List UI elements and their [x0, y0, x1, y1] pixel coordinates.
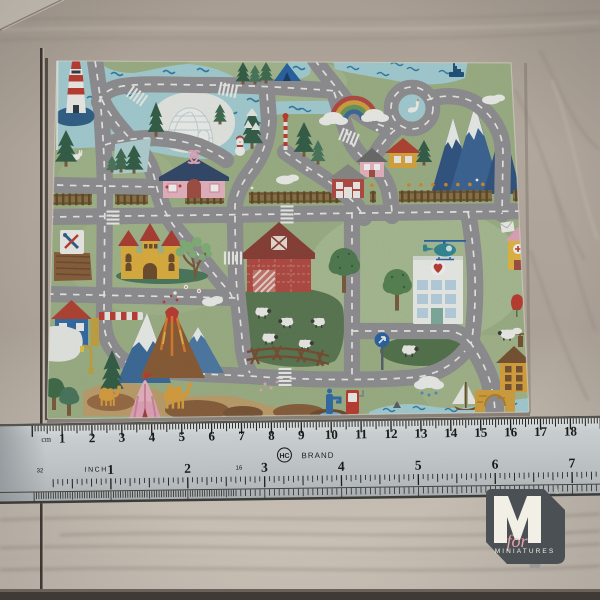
svg-text:12: 12: [384, 426, 397, 441]
svg-text:3: 3: [261, 460, 268, 475]
svg-text:10: 10: [325, 427, 338, 442]
svg-text:11: 11: [355, 426, 368, 441]
svg-text:4: 4: [149, 429, 156, 444]
svg-text:5: 5: [415, 458, 422, 473]
svg-text:32: 32: [37, 468, 44, 474]
svg-text:BRAND: BRAND: [301, 451, 334, 460]
svg-text:8: 8: [268, 428, 275, 443]
svg-text:2: 2: [184, 461, 191, 476]
svg-text:HC: HC: [279, 453, 289, 460]
svg-text:6: 6: [492, 456, 499, 471]
svg-text:17: 17: [534, 424, 548, 439]
svg-text:6: 6: [208, 428, 215, 443]
svg-text:4: 4: [338, 459, 345, 474]
svg-text:1: 1: [59, 431, 66, 446]
svg-text:13: 13: [414, 425, 428, 440]
svg-text:INCH: INCH: [85, 466, 108, 473]
svg-text:®: ®: [554, 488, 560, 496]
svg-text:cm: cm: [41, 435, 52, 444]
svg-text:14: 14: [444, 425, 458, 440]
svg-text:16: 16: [504, 424, 518, 439]
svg-text:3: 3: [119, 430, 126, 445]
svg-text:18: 18: [564, 423, 578, 438]
svg-text:1: 1: [107, 462, 114, 477]
svg-text:7: 7: [238, 428, 245, 443]
svg-text:9: 9: [298, 427, 305, 442]
svg-text:MINIATURES: MINIATURES: [495, 548, 556, 555]
svg-text:16: 16: [236, 466, 243, 472]
svg-text:5: 5: [178, 429, 185, 444]
svg-text:2: 2: [89, 430, 96, 445]
svg-text:7: 7: [569, 455, 576, 470]
svg-text:15: 15: [474, 425, 488, 440]
